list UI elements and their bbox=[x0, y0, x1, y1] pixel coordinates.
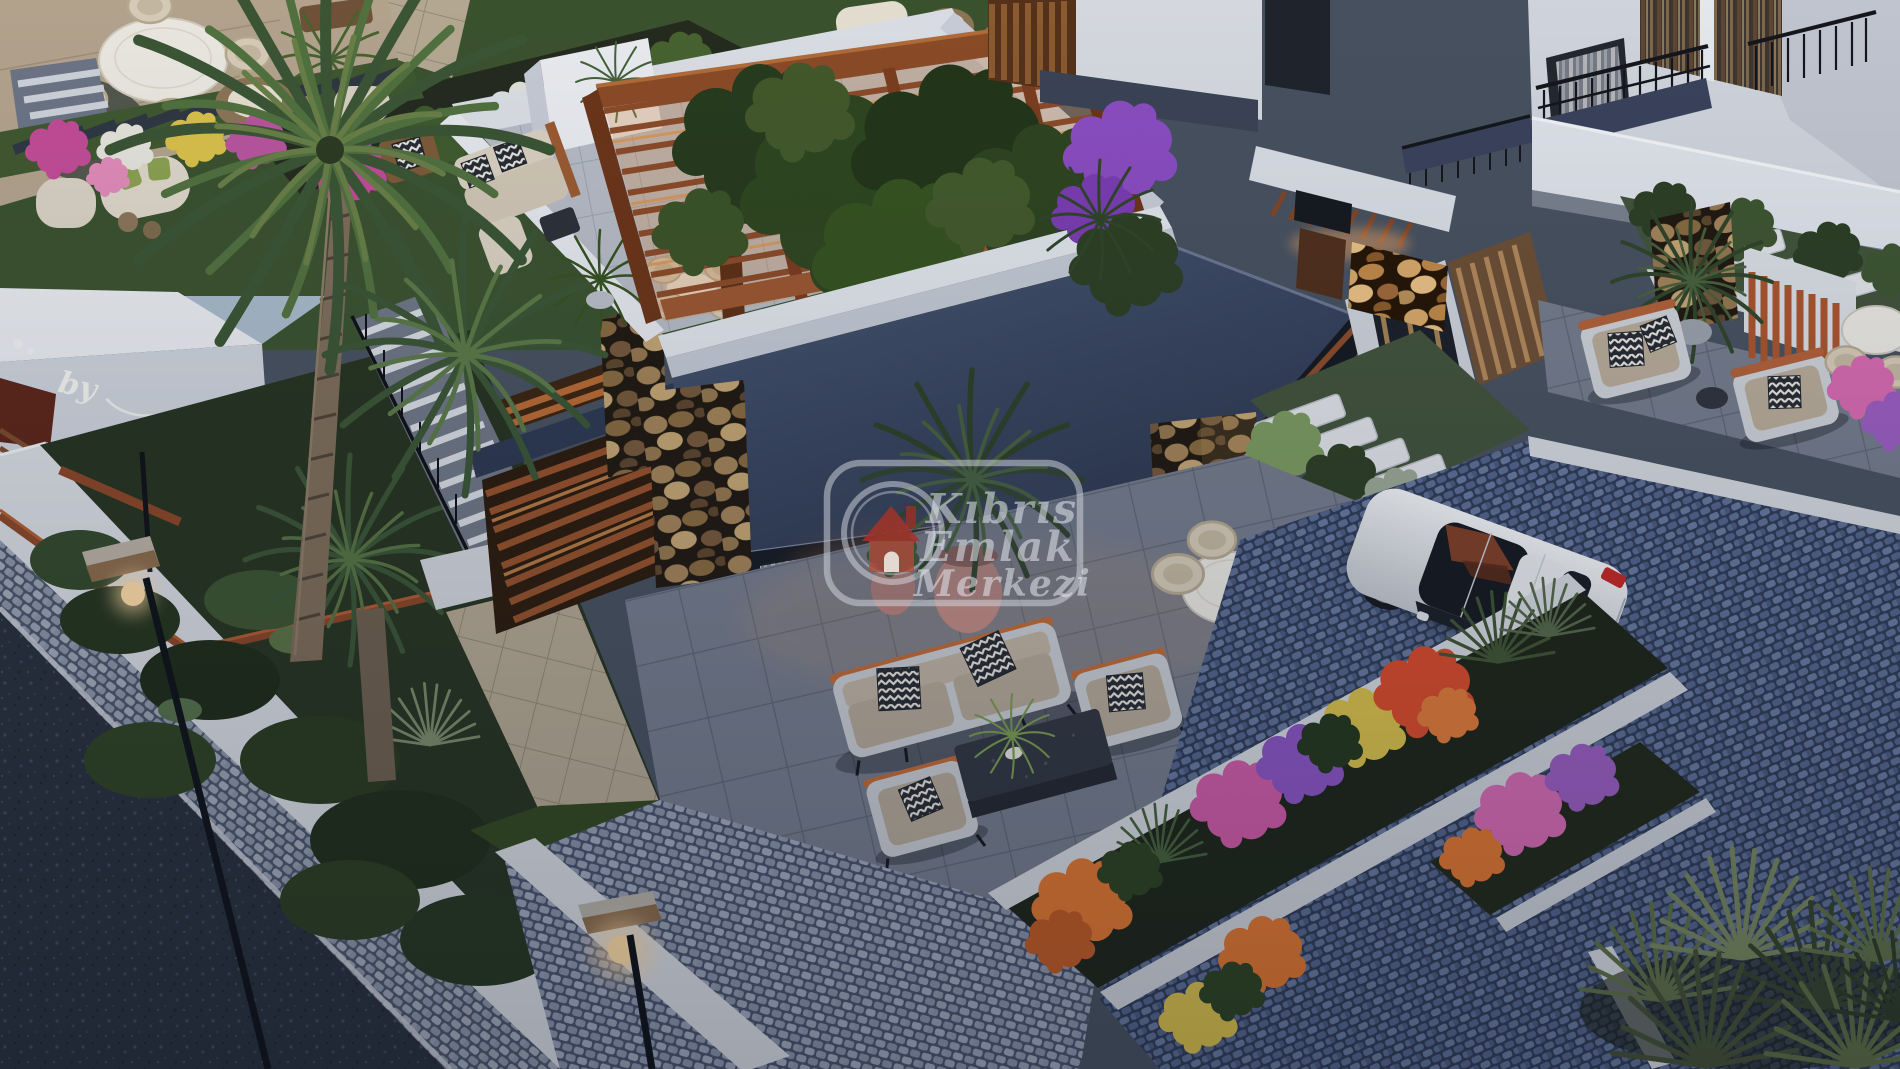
watermark-badge: Kıbrıs Emlak Merkezi bbox=[827, 463, 1092, 605]
render-image: by bbox=[0, 0, 1900, 1069]
villa-render-scene: by bbox=[0, 0, 1900, 1069]
watermark-line-3: Merkezi bbox=[912, 563, 1092, 605]
